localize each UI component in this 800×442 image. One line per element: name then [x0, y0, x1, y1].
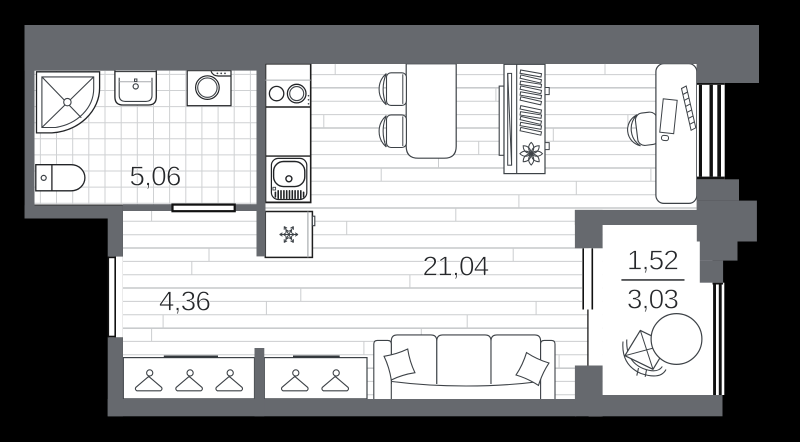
svg-text:4,36: 4,36 [159, 286, 211, 317]
svg-text:1,52: 1,52 [627, 245, 679, 276]
svg-text:3,03: 3,03 [627, 283, 679, 314]
svg-text:21,04: 21,04 [422, 251, 488, 282]
svg-text:5,06: 5,06 [129, 161, 181, 192]
